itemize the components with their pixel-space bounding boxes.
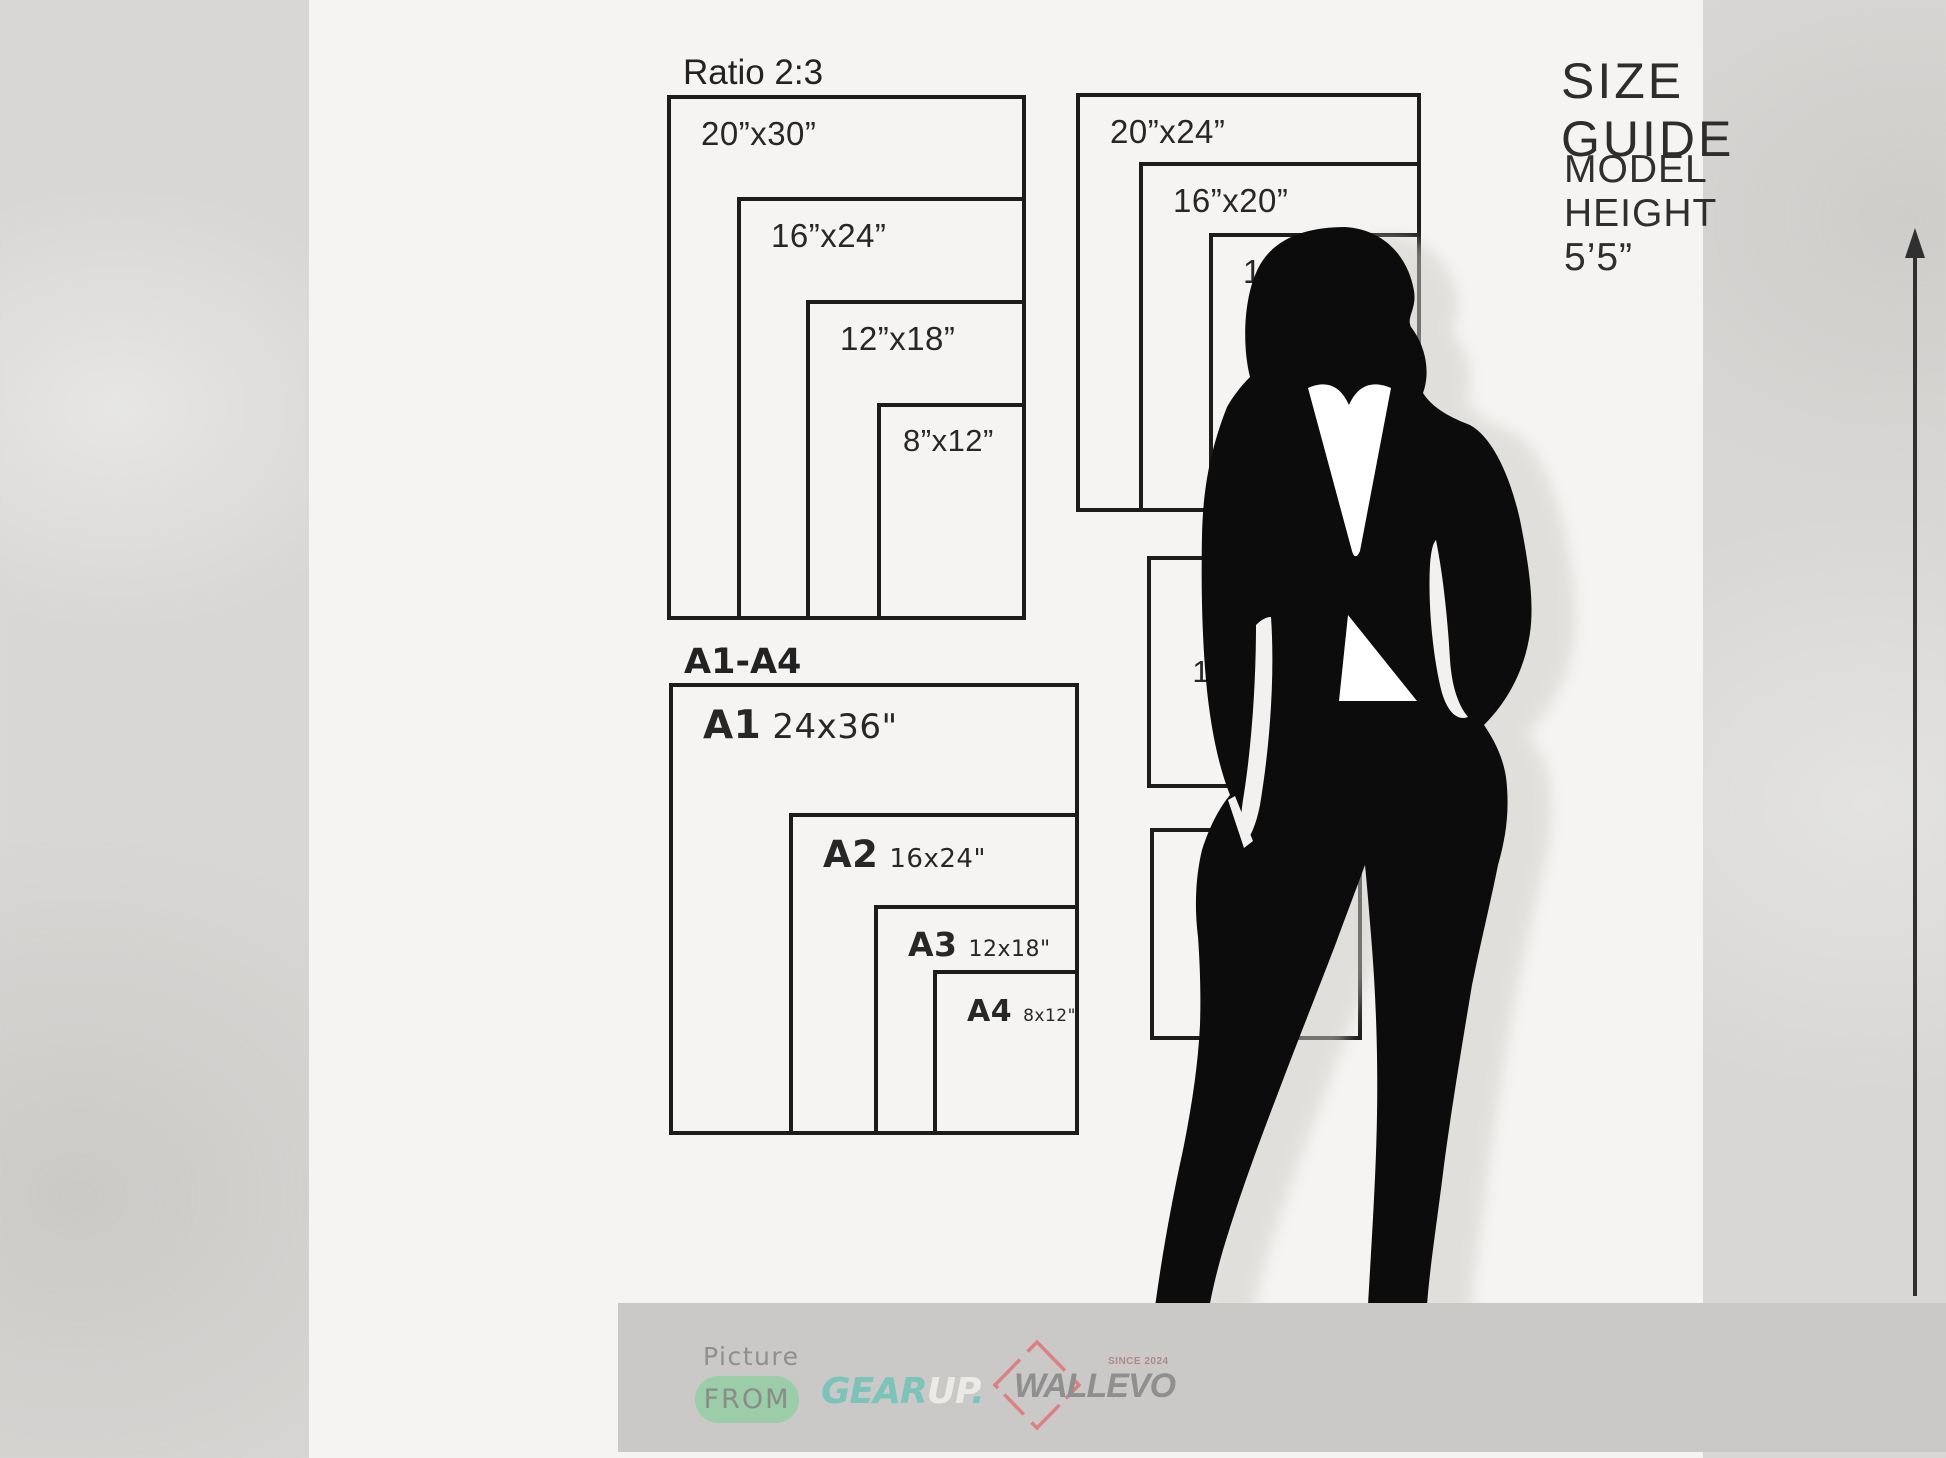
size-box-8x12: 8”x12” xyxy=(877,403,1026,620)
a-series-name: A3 xyxy=(908,925,958,964)
size-guide-infographic: Ratio 2:3 20”x30” 16”x24” 12”x18” 8”x12”… xyxy=(0,0,1946,1458)
gearup-logo-gear: GEAR xyxy=(821,1371,927,1412)
size-box-a4: A4 8x12" xyxy=(933,970,1079,1135)
height-arrow-line xyxy=(1913,254,1917,1296)
size-box-label: 16”x24” xyxy=(741,201,1022,255)
from-badge: FROM xyxy=(695,1376,799,1423)
a-series-name: A4 xyxy=(967,994,1012,1029)
model-silhouette xyxy=(1140,225,1560,1355)
a-series-title: A1-A4 xyxy=(684,642,801,682)
a-series-size: 8x12" xyxy=(1023,1006,1076,1026)
a-series-name: A2 xyxy=(823,833,878,876)
size-box-label: 20”x30” xyxy=(671,99,1022,153)
from-badge-label: FROM xyxy=(704,1384,791,1415)
picture-label: Picture xyxy=(703,1342,799,1371)
gearup-logo-up: UP xyxy=(927,1371,971,1412)
ratio-group-title: Ratio 2:3 xyxy=(683,53,823,93)
wallevo-since-label: SINCE 2024 xyxy=(1108,1356,1169,1367)
size-box-label: 8”x12” xyxy=(881,407,1022,459)
a-series-size: 24x36" xyxy=(772,707,897,747)
a-series-name: A1 xyxy=(703,703,761,748)
a-series-size: 12x18" xyxy=(969,937,1051,962)
size-box-label: 20”x24” xyxy=(1080,97,1417,151)
size-box-label: 12”x18” xyxy=(810,304,1022,358)
content-panel: Ratio 2:3 20”x30” 16”x24” 12”x18” 8”x12”… xyxy=(309,0,1703,1458)
gearup-logo: GEARUP. xyxy=(821,1371,984,1412)
wallevo-logo: WALLEVO xyxy=(1014,1367,1175,1406)
a-series-size: 16x24" xyxy=(889,844,986,874)
model-height-label: MODEL HEIGHT 5’5” xyxy=(1564,148,1717,280)
footer-band xyxy=(618,1303,1946,1452)
gearup-logo-dot: . xyxy=(971,1371,984,1412)
size-box-label: 16”x20” xyxy=(1143,166,1417,220)
